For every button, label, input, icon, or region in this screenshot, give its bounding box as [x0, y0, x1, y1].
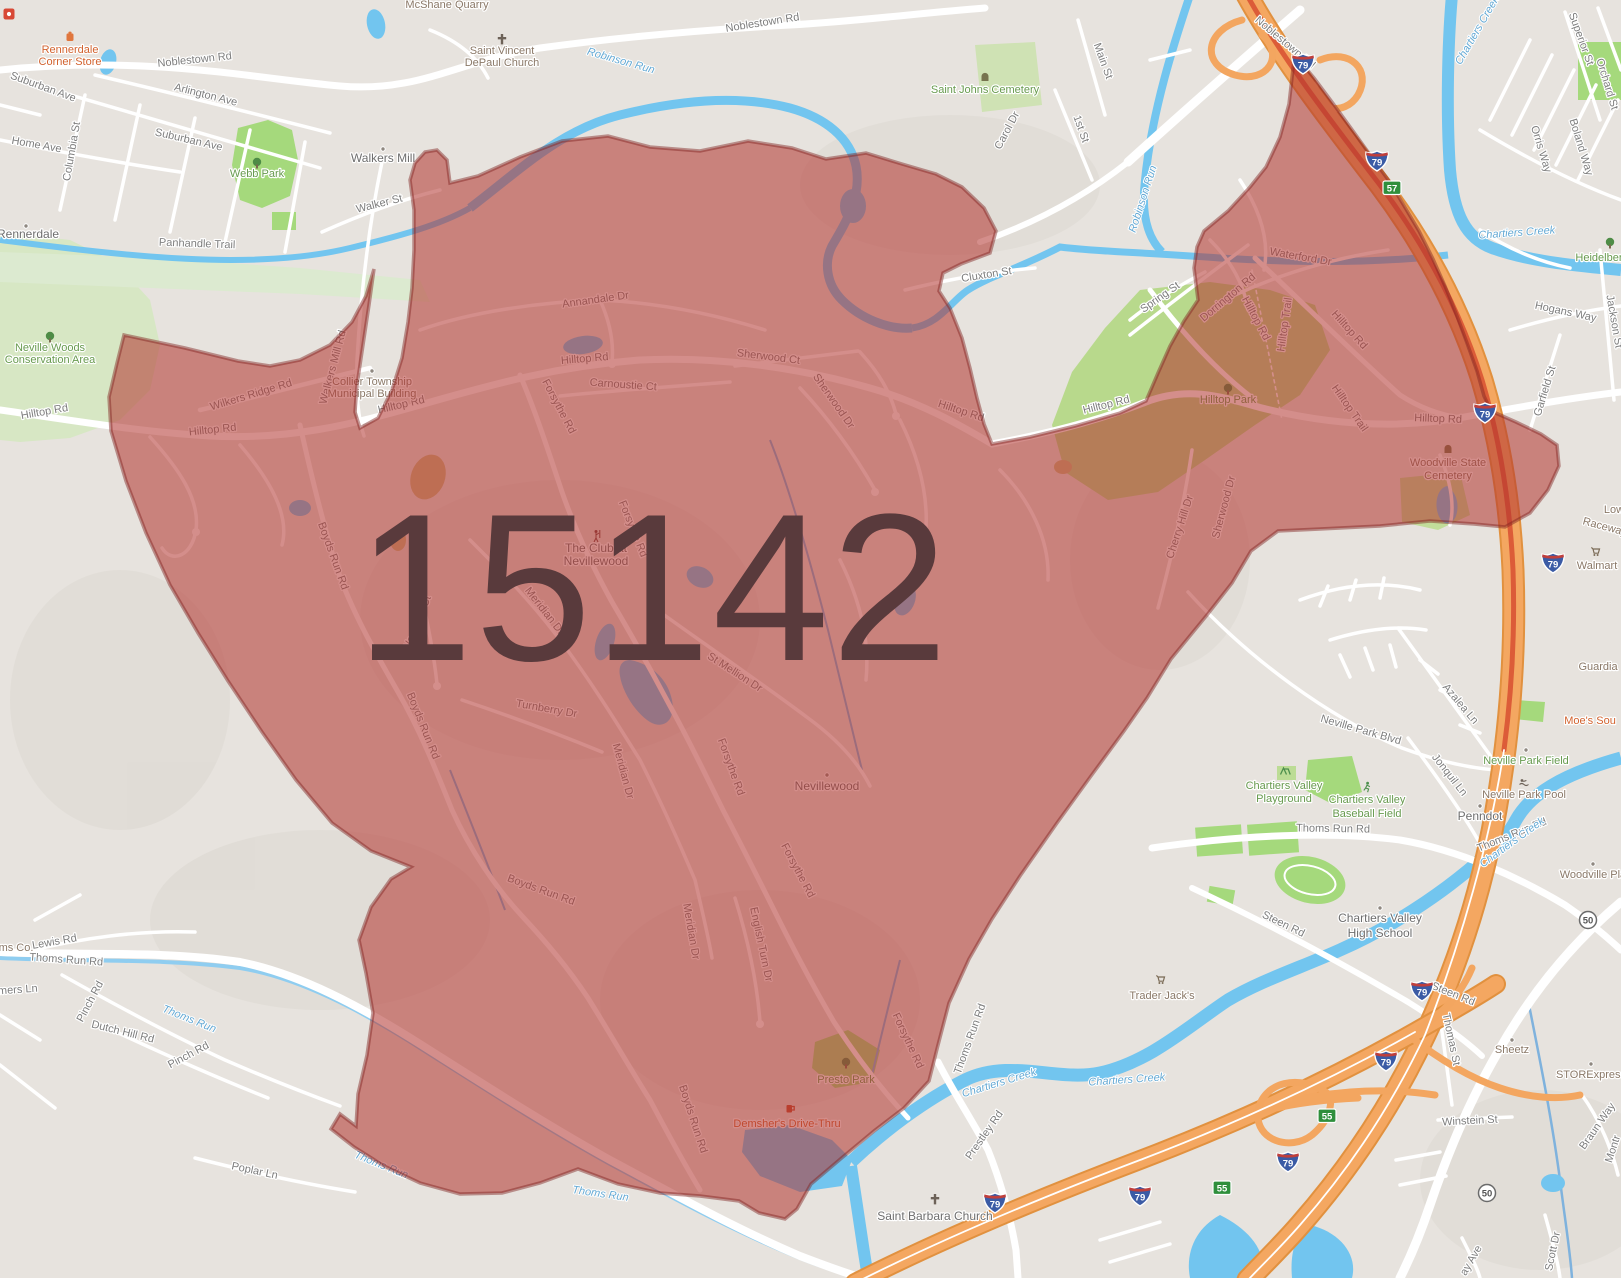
- place-dot: [1510, 1038, 1514, 1042]
- place-label: Saint Barbara Church: [877, 1209, 992, 1223]
- place-dot: [1524, 748, 1528, 752]
- poi-label: DePaul Church: [465, 57, 540, 69]
- exit-badge-label: 57: [1387, 184, 1398, 195]
- i79-shield-label: 79: [1480, 410, 1491, 421]
- i79-shield-label: 79: [1372, 158, 1383, 169]
- poi-label: Saint Johns Cemetery: [931, 84, 1040, 96]
- zip-code-label: 15142: [356, 470, 950, 705]
- i79-shield-label: 79: [1548, 560, 1559, 571]
- i79-shield-label: 79: [990, 1200, 1001, 1211]
- poi-label: Rennerdale: [42, 44, 99, 56]
- place-label: Walkers Mill: [351, 151, 415, 165]
- poi-label: Heidelberg: [1575, 252, 1621, 264]
- poi-label: Chartiers Valley: [1246, 780, 1323, 792]
- poi-label: Saint Vincent: [470, 45, 535, 57]
- place-label: High School: [1348, 926, 1413, 940]
- place-dot: [1478, 804, 1482, 808]
- poi-label: STORExpress: [1556, 1069, 1621, 1081]
- poi-label: Walmart: [1577, 560, 1618, 572]
- place-label: Rennerdale: [0, 227, 59, 241]
- poi-label: McShane Quarry: [405, 0, 489, 11]
- map-canvas[interactable]: Noblestown Rd Noblestown Rd Noblestown R…: [0, 0, 1621, 1278]
- place-label: Penndot: [1458, 809, 1503, 823]
- place-dot: [370, 369, 374, 373]
- poi-label: Neville Park Field: [1483, 755, 1569, 767]
- road-label: Thoms Run Rd: [1296, 822, 1370, 835]
- poi-label: Chartiers Valley: [1329, 794, 1406, 806]
- poi-label: Neville Woods: [15, 342, 86, 354]
- poi-label: Playground: [1256, 793, 1312, 805]
- poi-label: Guardia: [1578, 661, 1618, 673]
- poi-label: Neville Park Pool: [1482, 789, 1566, 801]
- poi-label: Woodville Plan: [1560, 869, 1621, 881]
- poi-label: Corner Store: [39, 56, 102, 68]
- i79-shield-label: 79: [1417, 988, 1428, 999]
- exit-badge-label: 55: [1217, 1184, 1228, 1195]
- place-dot: [1591, 862, 1595, 866]
- place-dot: [1589, 1062, 1593, 1066]
- cemetery-icon: [982, 73, 989, 81]
- poi-label: ms Co.: [0, 942, 33, 954]
- route50-badge-label: 50: [1482, 1189, 1493, 1200]
- poi-label: Low: [1604, 504, 1621, 516]
- i79-shield-label: 79: [1381, 1058, 1392, 1069]
- poi-label: Sheetz: [1495, 1044, 1529, 1056]
- place-dot: [1378, 906, 1382, 910]
- poi-label: Baseball Field: [1332, 808, 1401, 820]
- poi-label: Moe's Sou: [1564, 715, 1616, 727]
- i79-shield-label: 79: [1283, 1159, 1294, 1170]
- poi-label: Conservation Area: [5, 354, 96, 366]
- place-label: Chartiers Valley: [1338, 911, 1422, 925]
- route50-badge-label: 50: [1583, 916, 1594, 927]
- exit-badge-label: 55: [1322, 1112, 1333, 1123]
- poi-label: Trader Jack's: [1129, 990, 1195, 1002]
- i79-shield-label: 79: [1135, 1193, 1146, 1204]
- poi-icon: [4, 9, 15, 20]
- poi-label: Webb Park: [230, 168, 285, 180]
- i79-shield-label: 79: [1298, 61, 1309, 72]
- map-viewport[interactable]: Noblestown Rd Noblestown Rd Noblestown R…: [0, 0, 1621, 1278]
